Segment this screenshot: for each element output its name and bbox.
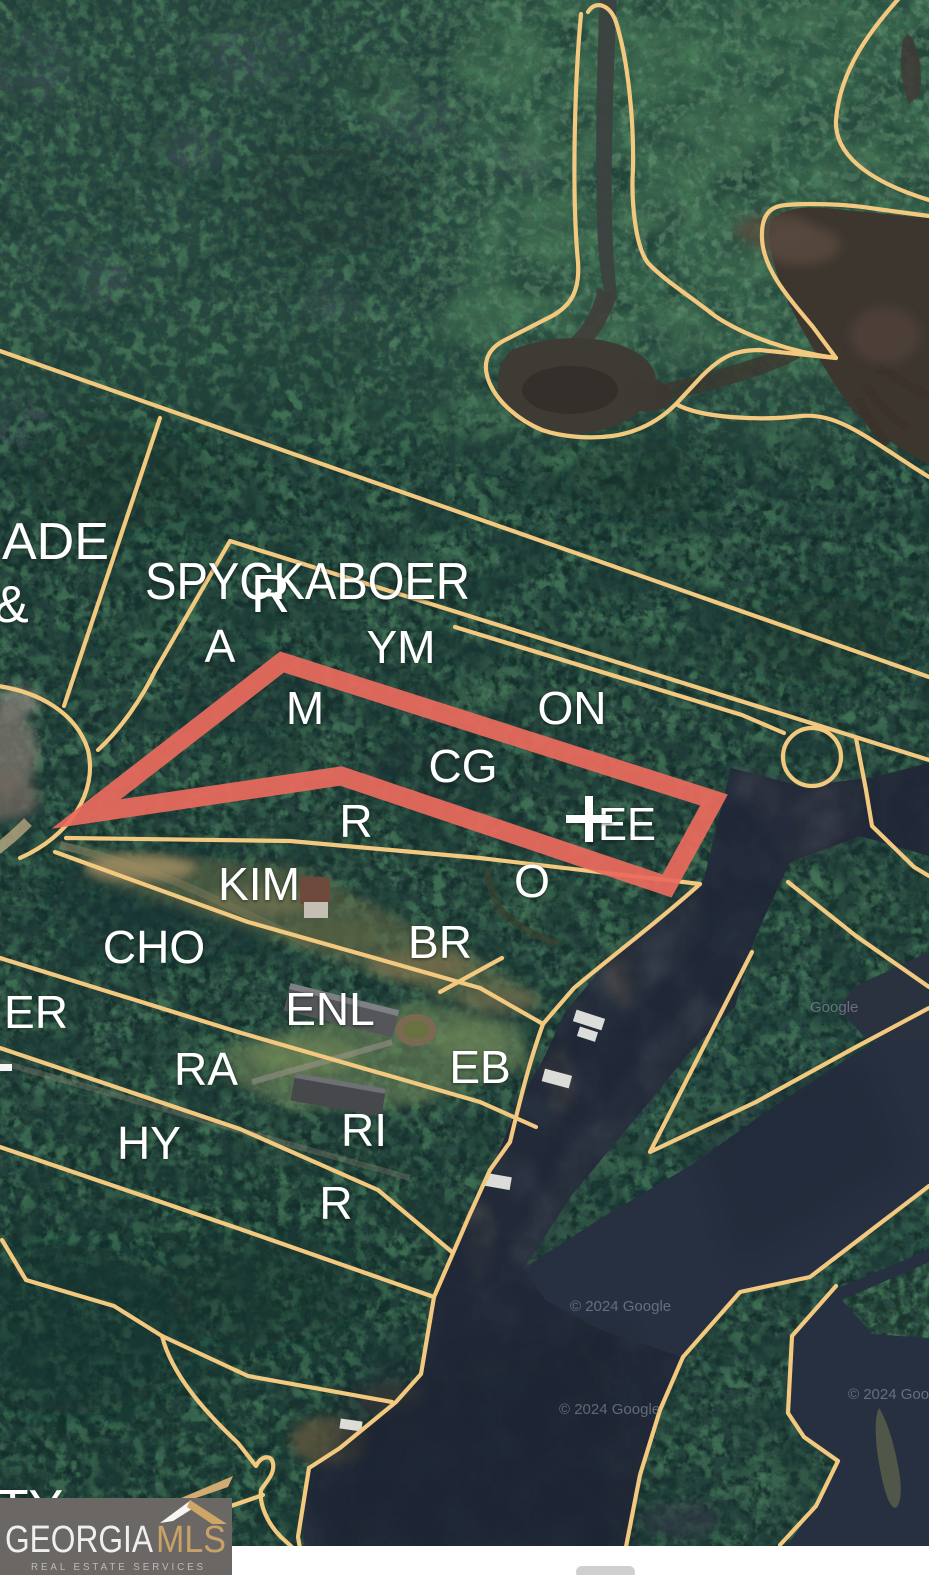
svg-text:R: R [339, 795, 372, 847]
svg-text:ENL: ENL [285, 983, 374, 1035]
svg-text:M: M [286, 682, 324, 734]
svg-text:R: R [251, 564, 290, 624]
svg-text:© 2024 Google: © 2024 Google [559, 1401, 660, 1418]
svg-text:YM: YM [367, 621, 436, 673]
svg-text:KIM: KIM [218, 858, 300, 910]
svg-text:O: O [514, 855, 550, 907]
svg-text:EB: EB [449, 1041, 510, 1093]
svg-text:RI: RI [341, 1104, 387, 1156]
svg-text:ON: ON [538, 682, 607, 734]
svg-text:A: A [205, 620, 236, 672]
svg-text:SPYCKABOER: SPYCKABOER [145, 553, 470, 611]
svg-text:RA: RA [174, 1043, 238, 1095]
svg-text:&: & [0, 576, 29, 634]
svg-text:© 2024 Google: © 2024 Google [570, 1298, 671, 1315]
svg-text:MLS: MLS [156, 1519, 226, 1561]
svg-text:ER: ER [4, 986, 68, 1038]
svg-text:BR: BR [408, 916, 472, 968]
svg-text:HY: HY [117, 1117, 181, 1169]
svg-text:CG: CG [429, 740, 498, 792]
svg-text:REAL ESTATE SERVICES: REAL ESTATE SERVICES [31, 1562, 206, 1573]
svg-text:EE: EE [598, 798, 656, 850]
svg-text:Google: Google [810, 999, 858, 1016]
svg-text:ADE: ADE [2, 513, 109, 571]
svg-text:GEORGIA: GEORGIA [5, 1519, 154, 1561]
svg-text:© 2024 Google: © 2024 Google [848, 1386, 929, 1403]
svg-text:CHO: CHO [103, 921, 205, 973]
svg-text:R: R [319, 1177, 352, 1229]
